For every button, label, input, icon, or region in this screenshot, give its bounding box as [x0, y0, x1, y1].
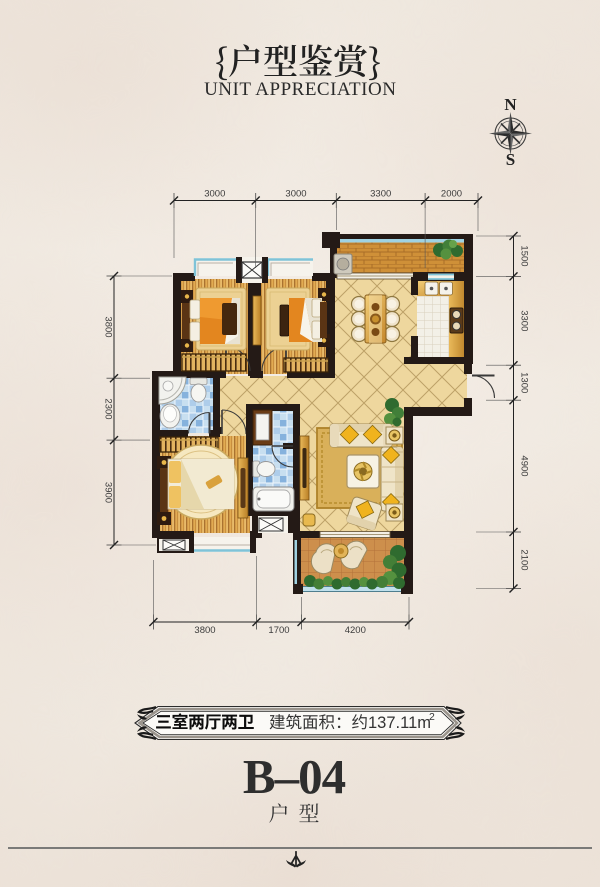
svg-text:3800: 3800	[194, 625, 215, 636]
svg-text:1300: 1300	[519, 372, 530, 393]
svg-text:1700: 1700	[268, 625, 289, 636]
svg-text:2: 2	[429, 711, 435, 723]
svg-text:3300: 3300	[370, 189, 391, 200]
svg-text:2000: 2000	[441, 189, 462, 200]
svg-text:2300: 2300	[103, 398, 114, 419]
svg-text:3000: 3000	[204, 189, 225, 200]
svg-text:1500: 1500	[519, 245, 530, 266]
svg-text:2100: 2100	[519, 549, 530, 570]
svg-text:3900: 3900	[103, 482, 114, 503]
svg-text:S: S	[506, 150, 515, 169]
svg-text:4200: 4200	[345, 625, 366, 636]
svg-text:3000: 3000	[285, 189, 306, 200]
svg-text:3300: 3300	[519, 310, 530, 331]
svg-text:3800: 3800	[103, 316, 114, 337]
svg-text:N: N	[504, 95, 517, 114]
svg-text:4900: 4900	[519, 455, 530, 476]
svg-text:137.11m: 137.11m	[368, 714, 431, 732]
